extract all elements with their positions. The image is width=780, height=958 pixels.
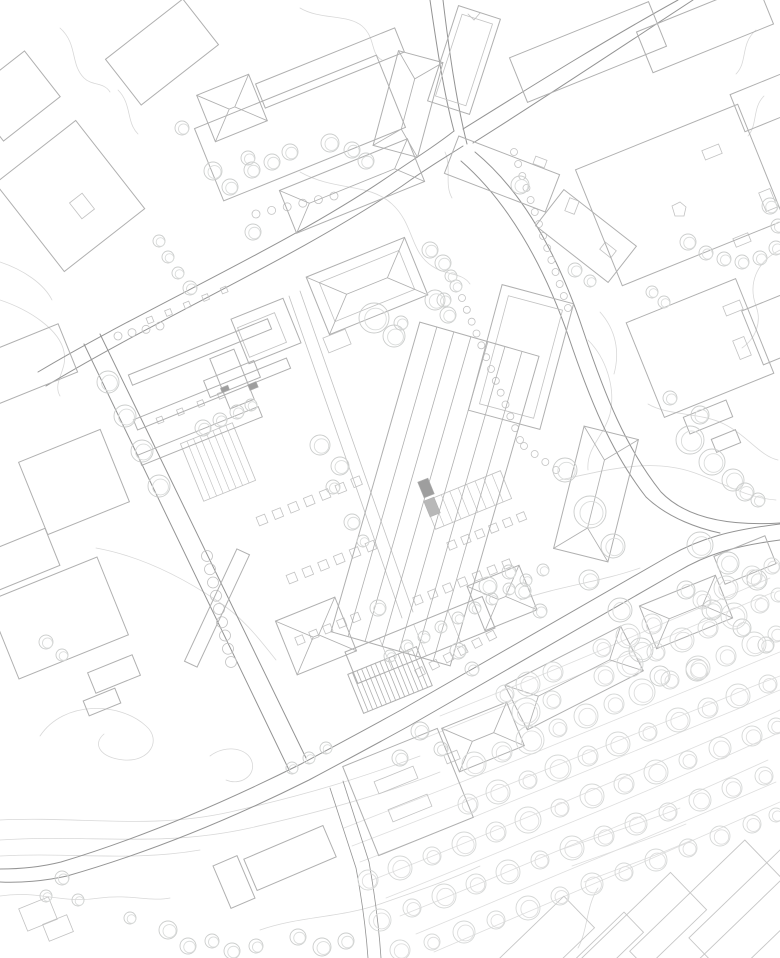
forest-trees (358, 558, 780, 958)
site-plan-drawing (0, 0, 780, 958)
site-plan-canvas (0, 0, 780, 958)
field-strips (496, 816, 780, 958)
trees (39, 121, 780, 958)
buildings (0, 0, 780, 908)
